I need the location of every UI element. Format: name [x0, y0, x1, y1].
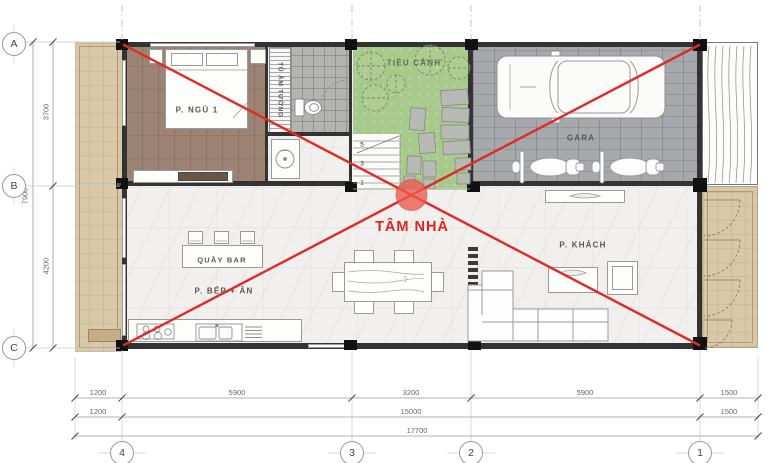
dim-b1: 5900 — [577, 388, 594, 397]
dim-b2: 1200 — [90, 407, 107, 416]
column — [467, 182, 480, 192]
column — [116, 178, 128, 189]
wardrobe-label: TỦ ÂM TƯỜNG — [277, 62, 284, 118]
console-table — [545, 190, 625, 203]
bar-label: QUẦY BAR — [197, 256, 246, 265]
stair-number: 1 — [360, 180, 364, 187]
column — [693, 39, 707, 51]
left-window-1 — [122, 60, 126, 126]
driveway-ramp — [702, 42, 758, 185]
stair-number: 3 — [360, 161, 364, 168]
stair-number: 5 — [360, 142, 364, 149]
vanity-counter — [271, 139, 300, 179]
floor-plan: P. NGỦ 1 TỦ ÂM TƯỜNG TIỂU CẢNH GARA QUẦY… — [0, 0, 769, 463]
column — [344, 340, 357, 350]
wall-bottom — [122, 343, 702, 349]
column — [116, 340, 128, 351]
grid-row-c: C — [2, 336, 26, 360]
dining-chair — [431, 272, 444, 292]
wall-garden-left — [349, 47, 352, 190]
bedroom-top-window — [150, 43, 255, 47]
dim-total: 17700 — [407, 426, 428, 435]
bar-stool — [188, 231, 203, 244]
wall-bath-bottom — [265, 132, 349, 136]
extension-lines-bottom — [75, 350, 758, 453]
nightstand — [149, 49, 163, 64]
dining-chair — [394, 301, 414, 314]
dining-chair — [394, 250, 414, 263]
dim-b2: 15000 — [401, 407, 422, 416]
pillow — [206, 53, 238, 66]
dining-chair — [354, 250, 374, 263]
dim-b1: 1500 — [721, 388, 738, 397]
column — [465, 39, 478, 50]
right-door-area — [702, 186, 758, 348]
column — [116, 39, 128, 50]
garage-label: GARA — [567, 134, 595, 143]
bathroom-floor — [291, 47, 349, 133]
dim-left-bottom: 4200 — [42, 258, 51, 275]
grid-col-4: 4 — [110, 441, 134, 463]
kitchen-label: P. BẾP + ĂN — [195, 287, 254, 296]
bedroom-rug — [178, 172, 228, 181]
column — [345, 182, 357, 192]
left-planter — [75, 42, 122, 352]
grid-row-a: A — [2, 32, 26, 56]
stair-area — [352, 134, 400, 190]
grid-col-3: 3 — [340, 441, 364, 463]
dining-table — [344, 262, 432, 302]
dining-chair — [332, 272, 345, 292]
column — [693, 178, 707, 192]
dim-b1: 3200 — [403, 388, 420, 397]
dim-b1: 1200 — [90, 388, 107, 397]
grid-lines-top — [122, 5, 700, 40]
wall-bedroom-right — [265, 47, 268, 181]
column — [345, 39, 357, 50]
coffee-table — [548, 267, 598, 293]
bar-stool — [214, 231, 229, 244]
dim-left-top: 3700 — [42, 104, 51, 121]
house-center-label: TÂM NHÀ — [375, 219, 449, 235]
dim-b1: 5900 — [229, 388, 246, 397]
bottom-window — [308, 344, 348, 348]
pillow — [171, 53, 203, 66]
wall-right — [697, 42, 702, 348]
living-label: P. KHÁCH — [559, 241, 606, 250]
left-window-2 — [122, 198, 126, 258]
dim-b2: 1500 — [721, 407, 738, 416]
grid-col-1: 1 — [688, 441, 712, 463]
garage-floor — [473, 47, 697, 182]
wall-garden-right — [468, 47, 473, 186]
grid-row-b: B — [2, 174, 26, 198]
column — [468, 340, 481, 350]
door-area-border — [707, 191, 753, 343]
planter-border — [79, 46, 118, 348]
bar-stool — [240, 231, 255, 244]
armchair-seat — [612, 266, 633, 290]
left-window-3 — [122, 264, 126, 336]
bedroom-label: P. NGỦ 1 — [176, 106, 219, 115]
garden-label: TIỂU CẢNH — [387, 59, 441, 68]
kitchen-counter — [128, 319, 302, 342]
grid-col-2: 2 — [459, 441, 483, 463]
column — [693, 337, 707, 350]
dining-chair — [354, 301, 374, 314]
wall-grid-b-right — [470, 181, 702, 186]
nightstand — [250, 49, 266, 64]
